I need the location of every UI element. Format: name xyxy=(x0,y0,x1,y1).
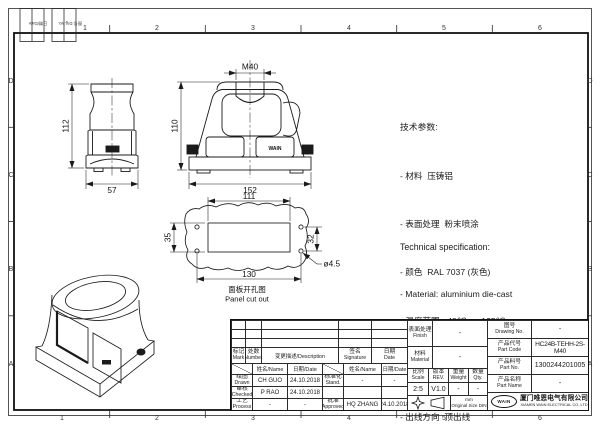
dim-cutout-right: 32 xyxy=(306,234,316,244)
scale-label: 比例Scale xyxy=(407,368,429,383)
qty-value: - xyxy=(468,382,488,396)
zone-col-label: 3 xyxy=(251,25,255,32)
dim-front-height: 110 xyxy=(170,119,180,133)
company-logo: WAIN xyxy=(491,395,517,408)
tech-spec-line: - Material: aluminium die-cast xyxy=(400,289,565,300)
weight-label: 重量Weight xyxy=(448,368,469,383)
revision-header-description: 变更描述/Description xyxy=(261,347,339,364)
side-view-dimensions xyxy=(68,84,138,189)
projection-symbols-icon xyxy=(409,396,449,410)
tech-spec-en-title: Technical specification: xyxy=(400,242,565,252)
label-en: Scale xyxy=(412,376,425,382)
zone-col-label: 4 xyxy=(347,25,351,32)
company-cell: WAIN 厦门唯恩电气有限公司 XIAMEN WAIN ELECTRICAL C… xyxy=(487,392,589,411)
material-label: 材料Material xyxy=(407,346,433,369)
approved-label: 批准Approved xyxy=(322,398,344,411)
process-name: - xyxy=(252,398,288,411)
zone-row-label: B xyxy=(588,266,593,273)
dim-cutout-left: 35 xyxy=(163,233,173,243)
dim-cutout-hole: ø4.5 xyxy=(324,259,341,269)
note-line-2: Original Size DIN A4 xyxy=(451,403,487,411)
zone-col-label: 6 xyxy=(538,25,542,32)
dim-cutout-top: 111 xyxy=(243,191,256,201)
dim-side-width: 57 xyxy=(107,185,117,195)
zone-row-label: C xyxy=(8,172,13,179)
zone-col-label: 3 xyxy=(251,415,255,422)
tech-params-cn-title: 技术参数: xyxy=(400,120,548,133)
tech-params-line: - 材料 压铸铝 xyxy=(400,170,548,182)
part-code-label: 产品代号Part Code xyxy=(487,338,532,357)
material-value: - xyxy=(432,346,488,369)
note-line-1: All Dimensions in mm xyxy=(451,395,487,403)
zone-col-label: 1 xyxy=(83,25,87,32)
zone-row-label: D xyxy=(587,78,592,85)
label-en: Process xyxy=(233,405,252,411)
label-en: Material xyxy=(411,358,429,364)
front-view xyxy=(187,60,313,178)
finish-label: 表面处理Finish xyxy=(407,320,433,347)
label-en: REV. xyxy=(433,376,445,382)
dimension-note-cell: All Dimensions in mm Original Size DIN A… xyxy=(450,395,488,411)
label-en: Signature xyxy=(344,356,366,362)
part-no-label: 产品料号Part No. xyxy=(487,356,532,375)
label-en: Drawing No. xyxy=(495,330,524,336)
revision-header-signature: 签名Signature xyxy=(338,347,372,364)
front-view-brand-label: WAIN xyxy=(268,146,281,152)
zone-col-label: 1 xyxy=(60,415,64,422)
zone-col-label: 5 xyxy=(442,25,446,32)
revision-header-date: 日期Date xyxy=(371,347,408,364)
drawing-no-value: - xyxy=(531,320,589,339)
label-en: Part Name xyxy=(497,384,522,390)
zone-col-label: 2 xyxy=(155,25,159,32)
zone-row-label: B xyxy=(9,266,14,273)
drawing-sheet: 1 2 3 4 5 6 1 2 3 4 5 6 D C B A D C B A … xyxy=(0,0,600,424)
rev-label: 版本REV. xyxy=(428,368,449,383)
finish-value: - xyxy=(432,320,488,347)
label-en: Date xyxy=(384,356,396,362)
isometric-view xyxy=(36,268,154,397)
approved-name: HQ ZHANG xyxy=(343,398,382,411)
weight-value: - xyxy=(448,382,469,396)
scale-value: 2:5 xyxy=(407,382,429,396)
label-en: Approved xyxy=(322,405,344,411)
company-name-en: XIAMEN WAIN ELECTRICAL CO.,LTD xyxy=(520,403,587,407)
part-no-value: 1300244201005 xyxy=(531,356,589,375)
dim-cutout-bottom: 130 xyxy=(242,269,256,279)
process-date: - xyxy=(287,398,323,411)
zone-row-label: D xyxy=(8,78,13,85)
revision-header-number: 处数Number xyxy=(245,347,262,364)
cutout-caption-cn: 面板开孔图 xyxy=(228,284,266,294)
rev-value: V1.0 xyxy=(428,382,449,396)
label-en: Part No. xyxy=(498,366,521,372)
side-view xyxy=(86,78,138,176)
label-en: Weight xyxy=(450,376,466,382)
cutout-caption-en: Panel cut out xyxy=(225,295,270,304)
label-en: Finish xyxy=(408,334,431,340)
part-name-value: - xyxy=(531,374,589,393)
approved-date: 24.10.2018 xyxy=(381,398,408,411)
zone-row-label: A xyxy=(9,361,14,368)
part-code-value: HC24B-TEHH-2S-M40 xyxy=(531,338,589,357)
process-label: 工艺Process xyxy=(231,398,253,411)
projection-symbols-cell xyxy=(407,395,451,411)
label-en: Part Code xyxy=(498,348,521,354)
corner-box-label: 图号 Drg.No. xyxy=(58,20,82,26)
dim-front-thread: M40 xyxy=(242,62,259,72)
drawing-no-label: 图号Drawing No. xyxy=(487,320,532,339)
zone-row-label: C xyxy=(587,172,592,179)
zone-col-label: 4 xyxy=(347,415,351,422)
dim-side-height: 112 xyxy=(61,119,71,133)
label-en: Mark xyxy=(233,356,245,362)
qty-label: 数量Qty. xyxy=(468,368,488,383)
label-en: Number xyxy=(245,356,262,362)
part-name-label: 产品名称Part Name xyxy=(487,374,532,393)
revision-header-mark: 标记Mark xyxy=(231,347,246,364)
zone-col-label: 2 xyxy=(155,415,159,422)
label-en: Qty. xyxy=(472,376,484,382)
